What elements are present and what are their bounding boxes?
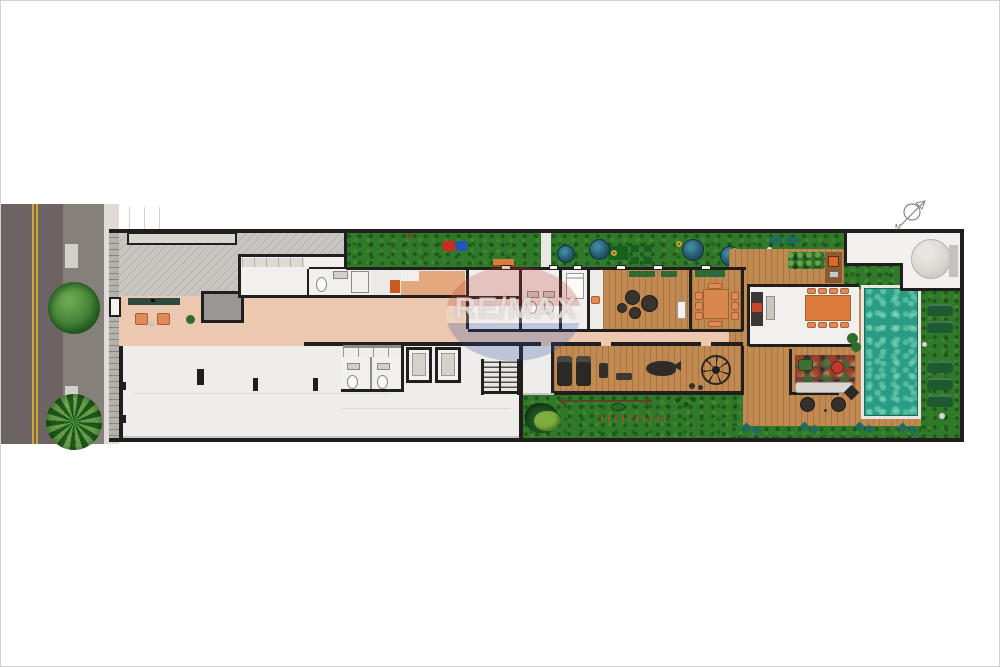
bbq-planter	[788, 252, 825, 269]
slackline-arrow	[558, 397, 565, 405]
bbq-sink-icon	[829, 271, 839, 278]
lobby-plant-icon	[186, 315, 195, 324]
site-floor-plan: N RE/MAX	[0, 0, 1000, 667]
light-well	[541, 233, 551, 269]
utility-wall	[900, 288, 962, 291]
stair-wall	[517, 359, 520, 395]
room-wall	[741, 346, 744, 395]
stair-wall	[483, 391, 520, 394]
teal-bench	[769, 237, 782, 243]
slackline-arrow	[646, 397, 653, 405]
gourmet-chair	[807, 322, 816, 328]
building-bottom-wall	[109, 438, 964, 442]
planter-box	[127, 232, 237, 245]
restroom-wall	[341, 389, 403, 392]
pouf	[629, 307, 641, 319]
lane-marking-yellow-1	[32, 204, 34, 444]
kid-stool	[698, 385, 703, 390]
restroom-divider	[370, 357, 372, 391]
window	[653, 265, 663, 270]
garage-left-wall	[119, 342, 123, 440]
stairs	[483, 361, 519, 393]
garden-seat	[644, 257, 652, 264]
pouf	[617, 303, 627, 313]
kitchen-wall	[747, 284, 750, 346]
garden-wall	[344, 233, 347, 269]
side-table	[148, 321, 155, 327]
ornamental-tree-icon	[589, 239, 610, 260]
elevator-car	[441, 353, 455, 376]
shower-stalls	[343, 345, 403, 357]
dining-table	[703, 289, 729, 319]
suite-floor-notch	[401, 271, 419, 281]
sun-lounger	[927, 321, 953, 333]
garden-seat	[631, 245, 639, 252]
north-compass-icon: N	[894, 197, 932, 233]
slackline	[564, 400, 646, 402]
entry-gate	[109, 297, 121, 317]
kid-stool	[689, 383, 695, 389]
building-right-wall	[960, 229, 964, 442]
kitchen-wall	[749, 344, 859, 347]
gourmet-chair	[829, 322, 838, 328]
gourmet-chair	[829, 288, 838, 294]
wall-mark	[119, 415, 126, 423]
window	[616, 265, 626, 270]
utility-area	[846, 233, 901, 263]
sun-lounger	[927, 395, 953, 407]
garden-ring-icon	[611, 250, 617, 256]
cabinet-orange	[390, 280, 400, 293]
building-top-wall	[109, 229, 964, 233]
swimming-pool	[864, 288, 918, 416]
sink-icon	[377, 363, 390, 370]
dining-chair	[731, 312, 739, 320]
garden-ring-icon	[676, 241, 682, 247]
water-tank	[911, 239, 951, 279]
lobby-armchair	[135, 313, 148, 325]
garden-seat	[644, 245, 652, 252]
gourmet-chair	[818, 322, 827, 328]
projection-line	[129, 207, 130, 229]
dining-chair	[708, 321, 722, 327]
gourmet-chair	[818, 288, 827, 294]
sun-lounger	[927, 304, 953, 316]
side-table	[922, 342, 927, 347]
utility-wall	[900, 263, 903, 291]
toilet-icon	[347, 375, 358, 389]
closet-band	[242, 258, 304, 267]
suite-wall	[238, 254, 348, 257]
dining-chair	[695, 292, 703, 300]
utility-equipment	[949, 245, 958, 277]
whale-toy-tail	[673, 361, 681, 371]
garage-guide-line	[133, 393, 391, 394]
sink-icon	[347, 363, 360, 370]
stepping-stone	[675, 398, 680, 403]
sink-icon	[333, 271, 348, 279]
dining-chair	[731, 302, 739, 310]
window-box	[661, 271, 677, 277]
restroom-wall	[401, 345, 404, 392]
window	[573, 265, 582, 270]
toilet-icon	[377, 375, 388, 389]
palm-tree-icon	[46, 394, 102, 450]
lane-marking-yellow-2	[36, 204, 38, 444]
projection-line	[144, 207, 145, 229]
lobby-armchair	[157, 313, 170, 325]
door-jamb	[313, 378, 318, 391]
tree-trunk-icon	[407, 233, 412, 238]
ornamental-tree-icon	[682, 239, 704, 261]
curb-pad	[65, 244, 78, 268]
gourmet-chair	[840, 288, 849, 294]
window-box	[629, 271, 655, 277]
pouf	[641, 295, 658, 312]
whale-toy	[646, 361, 676, 376]
treadmill	[557, 356, 572, 386]
exercise-bike	[599, 363, 608, 378]
suite-wall	[307, 269, 309, 295]
dining-chair	[695, 312, 703, 320]
suite-wall	[238, 254, 241, 298]
dining-counter	[695, 270, 725, 277]
pouf	[625, 290, 640, 305]
play-mat-red	[443, 241, 455, 251]
shower-icon	[351, 271, 369, 293]
watermark-brand: RE/MAX	[431, 292, 601, 332]
sun-lounger	[927, 378, 953, 390]
stepping-stone	[691, 397, 696, 402]
stove-icon	[752, 303, 762, 312]
rooms-top-wall	[346, 267, 746, 270]
grill-icon	[828, 256, 839, 267]
stair-rail	[499, 361, 501, 393]
projection-line	[159, 207, 160, 229]
door-jamb	[197, 369, 204, 385]
room-wall	[741, 267, 744, 331]
plant-icon	[851, 342, 861, 352]
window	[549, 265, 558, 270]
carousel-center	[712, 366, 720, 374]
dining-chair	[731, 292, 739, 300]
counter-sink-icon	[713, 272, 718, 276]
shelf	[677, 301, 686, 319]
kitchen-wall	[749, 284, 859, 287]
ornamental-tree-icon	[557, 245, 575, 263]
door-jamb	[253, 378, 258, 391]
sun-lounger	[927, 361, 953, 373]
deck-table	[800, 397, 815, 412]
utility-wall	[844, 233, 847, 265]
weight-bench	[616, 373, 632, 380]
coffee-table-red	[831, 361, 844, 374]
dining-chair	[708, 283, 722, 289]
dining-chair	[695, 302, 703, 310]
garden-seat	[631, 257, 639, 264]
play-mat-blue	[456, 241, 467, 251]
bed-pillow	[567, 277, 583, 279]
gourmet-chair	[840, 322, 849, 328]
ground-trampoline	[611, 403, 625, 411]
gourmet-chair	[807, 288, 816, 294]
desk-monitor-icon	[151, 299, 155, 302]
climbing-ladder	[601, 415, 667, 422]
compass-north-label: N	[895, 223, 901, 232]
kitchen-island	[766, 296, 775, 320]
boundary-fence	[109, 229, 119, 442]
elevator-car	[412, 353, 426, 376]
window	[701, 265, 711, 270]
garage-guide-line	[341, 408, 511, 409]
utility-wall	[844, 263, 903, 266]
street-tree-icon	[48, 282, 100, 334]
living-wall	[789, 349, 792, 394]
teal-bench	[786, 237, 799, 243]
side-table	[939, 413, 945, 419]
deck-table	[831, 397, 846, 412]
armchair-green	[798, 359, 813, 371]
toilet-icon	[316, 277, 327, 292]
stair-wall	[481, 359, 484, 395]
stepping-stone	[684, 402, 689, 407]
treadmill	[576, 356, 591, 386]
gourmet-table	[805, 295, 851, 321]
wall-mark	[119, 382, 126, 390]
